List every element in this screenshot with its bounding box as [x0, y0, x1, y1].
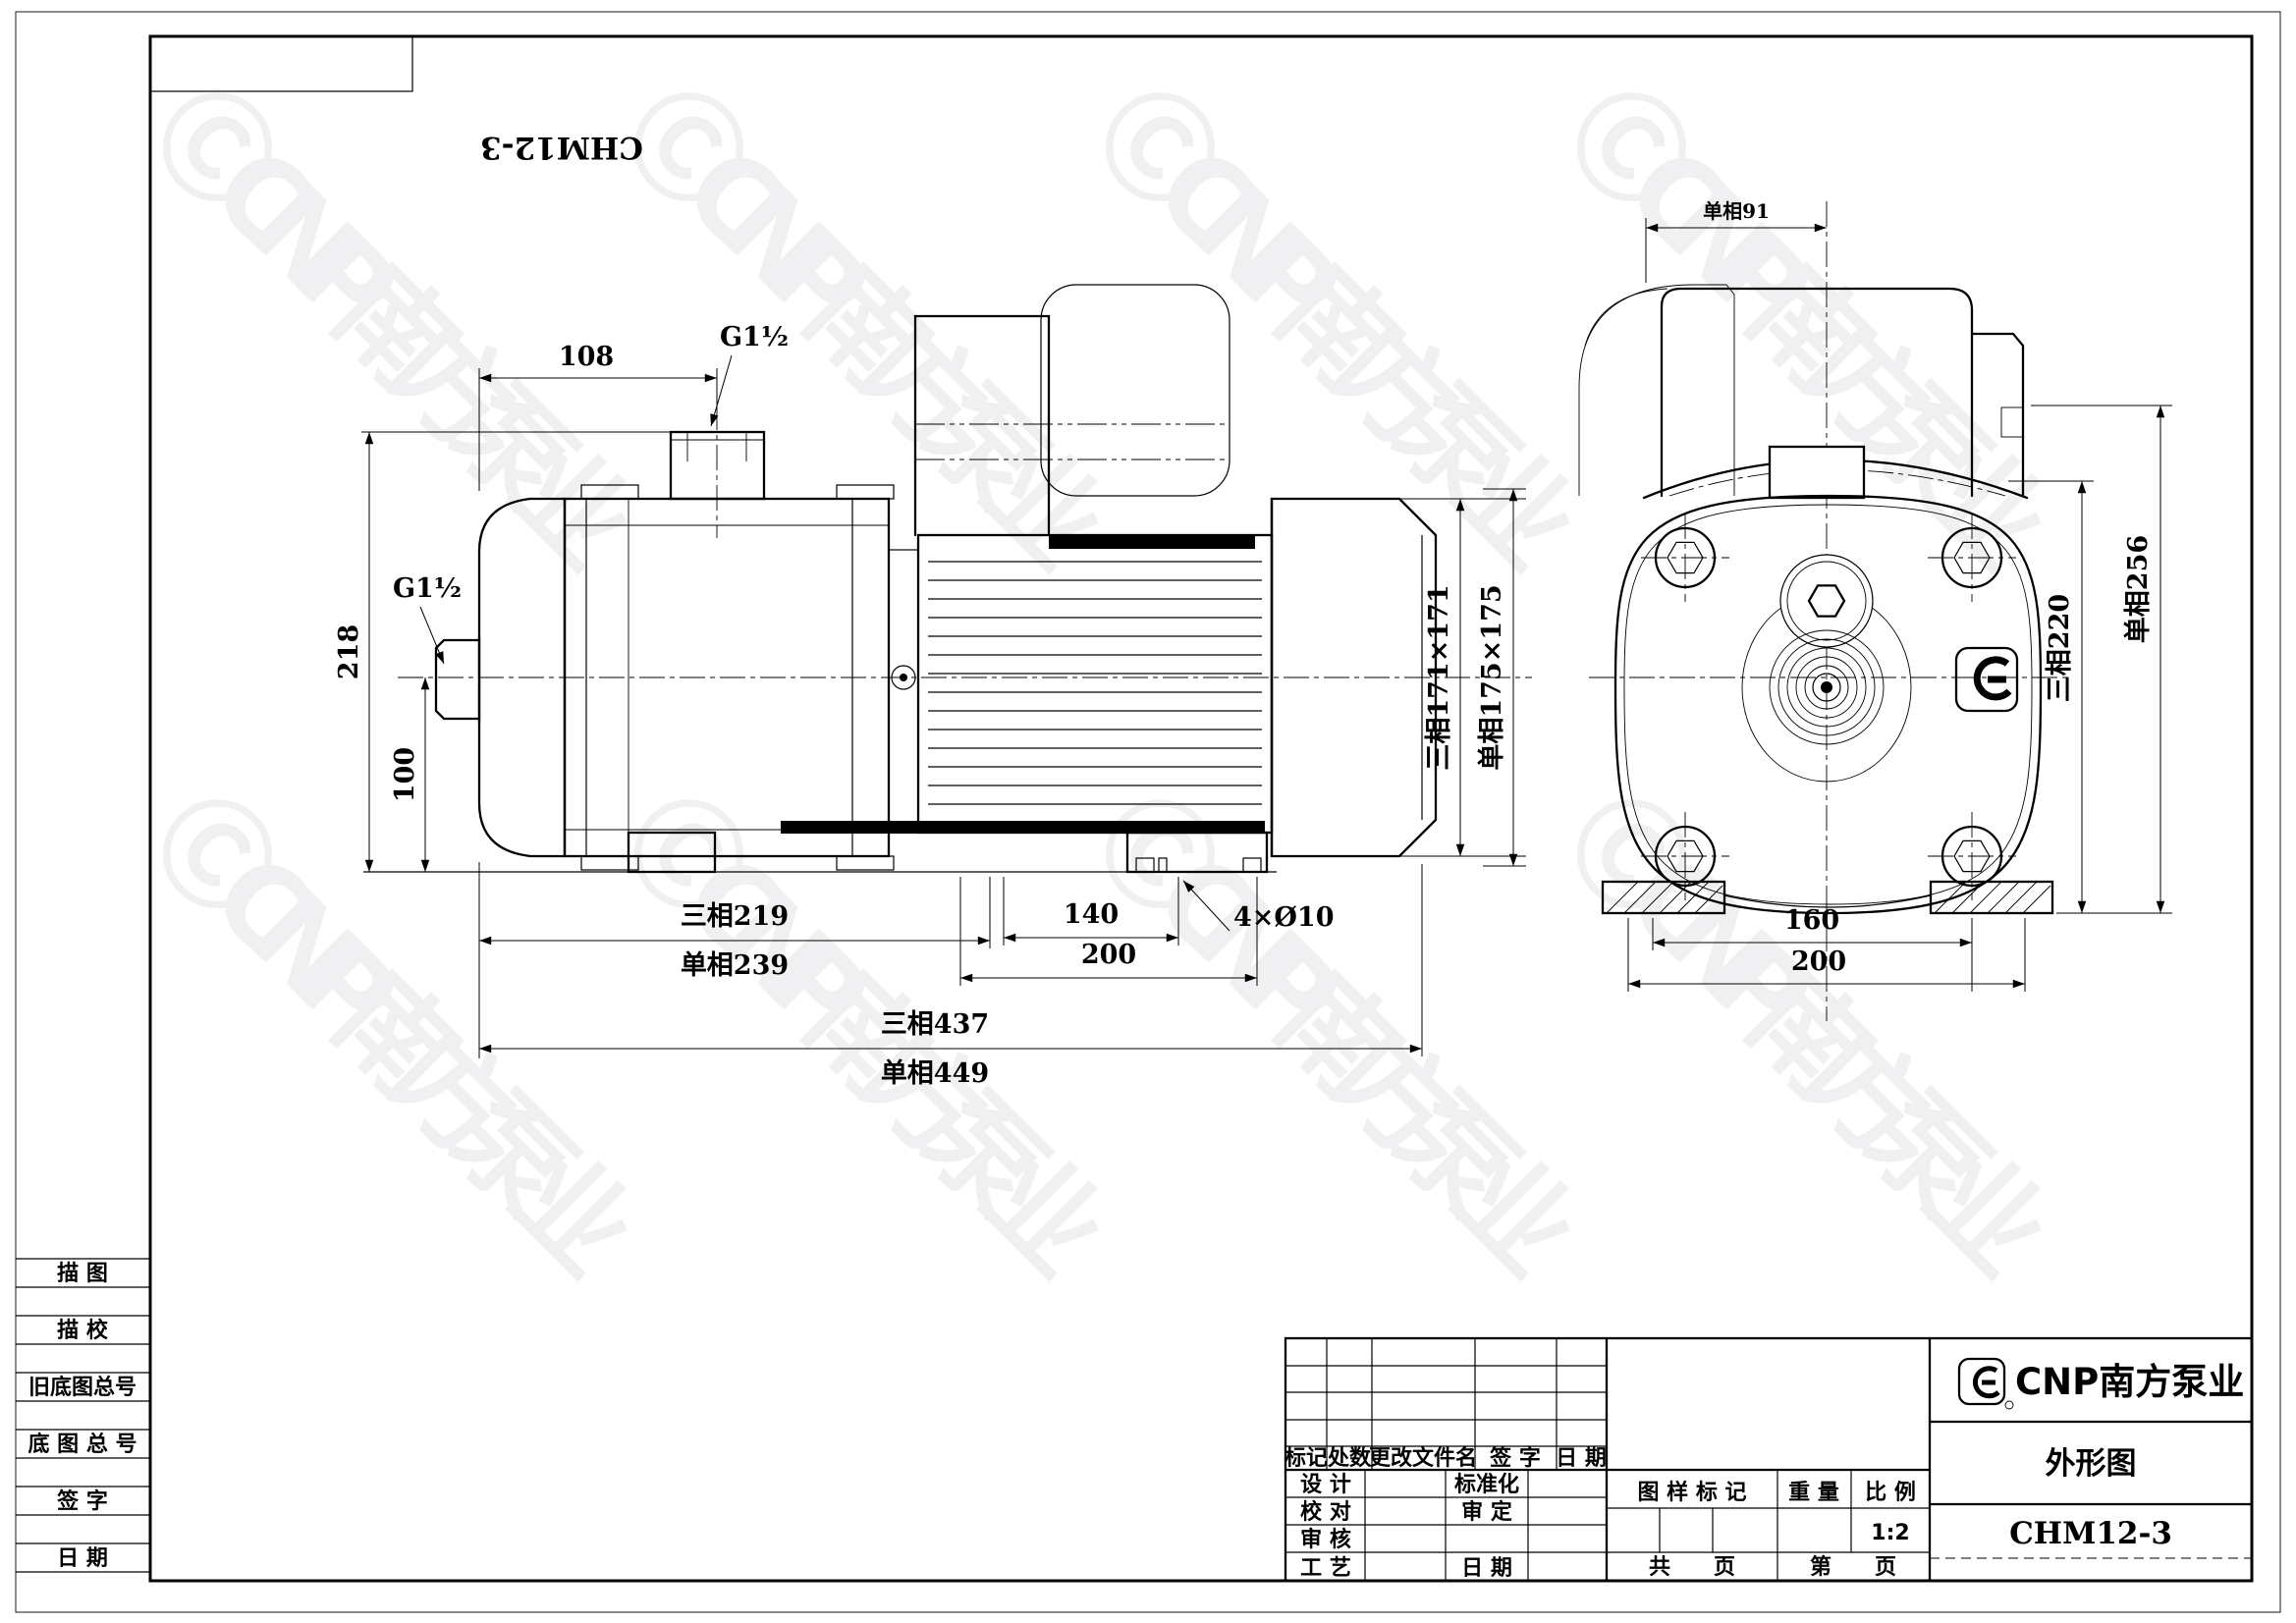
rev-header-file: 更改文件名 — [1369, 1445, 1477, 1471]
sig-date: 日 期 — [1461, 1556, 1512, 1581]
drawing-canvas: ⒸCNP南方泵业 ⒸCNP南方泵业 ⒸCNP南方泵业 ⒸCNP南方泵业 ⒸCNP… — [0, 0, 2296, 1623]
dim-218: 218 — [334, 624, 364, 679]
revision-table: 标记 处数 更改文件名 签 字 日 期 — [1285, 1338, 1607, 1471]
margin-label-master-no: 底 图 总 号 — [28, 1432, 137, 1457]
rev-header-mark: 标记 — [1285, 1445, 1328, 1471]
margin-label-old-master-no: 旧底图总号 — [28, 1375, 137, 1400]
sig-standardization: 标准化 — [1454, 1472, 1519, 1497]
dim-height-3phase: 三相220 — [2045, 594, 2075, 702]
rev-header-sign: 签 字 — [1489, 1445, 1541, 1471]
scale-header: 比 例 — [1865, 1481, 1916, 1505]
dim-200-front: 200 — [1791, 947, 1846, 977]
dim-frame-3phase: 三相171×171 — [1424, 584, 1454, 770]
rev-header-date: 日 期 — [1556, 1446, 1607, 1471]
sig-design: 设 计 — [1300, 1473, 1351, 1497]
watermark: ⒸCNP南方泵业 ⒸCNP南方泵业 ⒸCNP南方泵业 ⒸCNP南方泵业 ⒸCNP… — [128, 64, 2069, 1298]
svg-text:ⒸCNP南方泵业: ⒸCNP南方泵业 — [128, 771, 655, 1298]
svg-text:ⒸCNP南方泵业: ⒸCNP南方泵业 — [1542, 771, 2069, 1298]
dim-discharge-port: G1½ — [720, 322, 789, 352]
signature-grid: 设 计 标准化 校 对 审 定 审 核 工 艺 日 期 — [1285, 1470, 1607, 1581]
margin-label-trace-check: 描 校 — [57, 1318, 109, 1343]
cnp-logo-icon — [1959, 1359, 2013, 1409]
dim-total-3phase: 三相437 — [881, 1009, 989, 1040]
pages-total: 共 页 — [1649, 1555, 1735, 1580]
dim-total-1phase: 单相449 — [881, 1058, 989, 1089]
dim-frame-1phase: 单相175×175 — [1477, 584, 1507, 770]
weight-header: 重 量 — [1788, 1481, 1839, 1505]
page-number: 第 页 — [1810, 1554, 1896, 1580]
svg-text:ⒸCNP南方泵业: ⒸCNP南方泵业 — [1070, 64, 1598, 591]
stamp-scale-grid: 图 样 标 记 重 量 比 例 1:2 共 页 第 页 — [1607, 1470, 1930, 1581]
dim-108: 108 — [559, 342, 614, 372]
dim-160: 160 — [1784, 905, 1839, 936]
margin-label-trace: 描 图 — [57, 1262, 108, 1286]
sig-process: 工 艺 — [1300, 1555, 1351, 1581]
dim-140: 140 — [1064, 899, 1119, 930]
margin-label-date: 日 期 — [57, 1546, 108, 1571]
company-name: CNP南方泵业 — [2015, 1361, 2244, 1403]
sig-review: 审 核 — [1300, 1527, 1351, 1552]
scale-value: 1:2 — [1871, 1521, 1909, 1545]
title-block: 标记 处数 更改文件名 签 字 日 期 设 计 标准化 校 对 审 定 审 核 … — [1285, 1338, 2252, 1581]
drawing-title: 外形图 — [2046, 1446, 2137, 1482]
svg-text:ⒸCNP南方泵业: ⒸCNP南方泵业 — [1542, 64, 2069, 591]
doc-number: CHM12-3 — [480, 130, 643, 165]
svg-text:ⒸCNP南方泵业: ⒸCNP南方泵业 — [599, 771, 1126, 1298]
dim-suction-port: G1½ — [393, 573, 462, 604]
model-number: CHM12-3 — [2009, 1516, 2172, 1551]
dim-length-3phase: 三相219 — [681, 901, 789, 932]
drawing-sheet: ⒸCNP南方泵业 ⒸCNP南方泵业 ⒸCNP南方泵业 ⒸCNP南方泵业 ⒸCNP… — [0, 0, 2296, 1623]
dim-91-1phase: 单相91 — [1703, 199, 1770, 223]
margin-column: 描 图 描 校 旧底图总号 底 图 总 号 签 字 日 期 — [16, 1259, 150, 1572]
rev-header-count: 处数 — [1327, 1445, 1372, 1471]
margin-label-signature: 签 字 — [56, 1488, 108, 1514]
sig-proofread: 校 对 — [1300, 1499, 1351, 1525]
dim-200: 200 — [1081, 940, 1136, 970]
dim-100: 100 — [390, 747, 420, 802]
svg-text:ⒸCNP南方泵业: ⒸCNP南方泵业 — [1070, 771, 1598, 1298]
dim-length-1phase: 单相239 — [681, 950, 789, 981]
title-area: CNP南方泵业 外形图 CHM12-3 — [1930, 1359, 2252, 1558]
stamp-header: 图 样 标 记 — [1638, 1480, 1747, 1505]
dim-height-1phase: 单相256 — [2123, 535, 2154, 643]
dim-mounting-holes: 4×Ø10 — [1233, 902, 1335, 933]
sig-approve: 审 定 — [1461, 1499, 1512, 1525]
cnp-emblem-icon — [1956, 648, 2017, 711]
